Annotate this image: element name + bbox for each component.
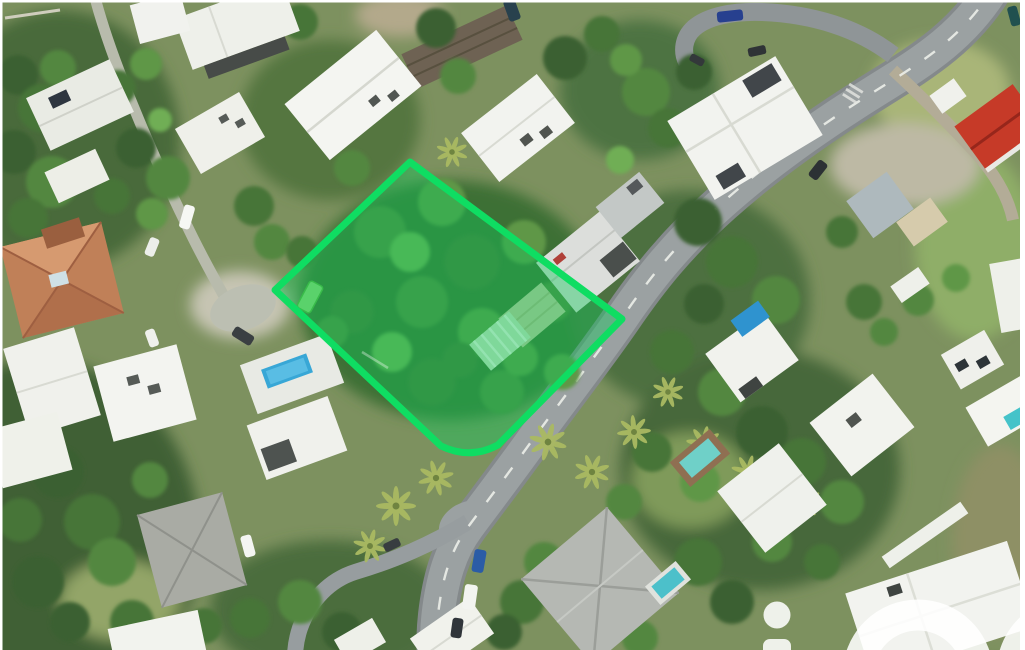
satellite-scene (0, 0, 1025, 650)
watermark-i-stem (763, 639, 791, 650)
aerial-photo (0, 0, 1025, 650)
watermark-i-dot (764, 602, 791, 629)
